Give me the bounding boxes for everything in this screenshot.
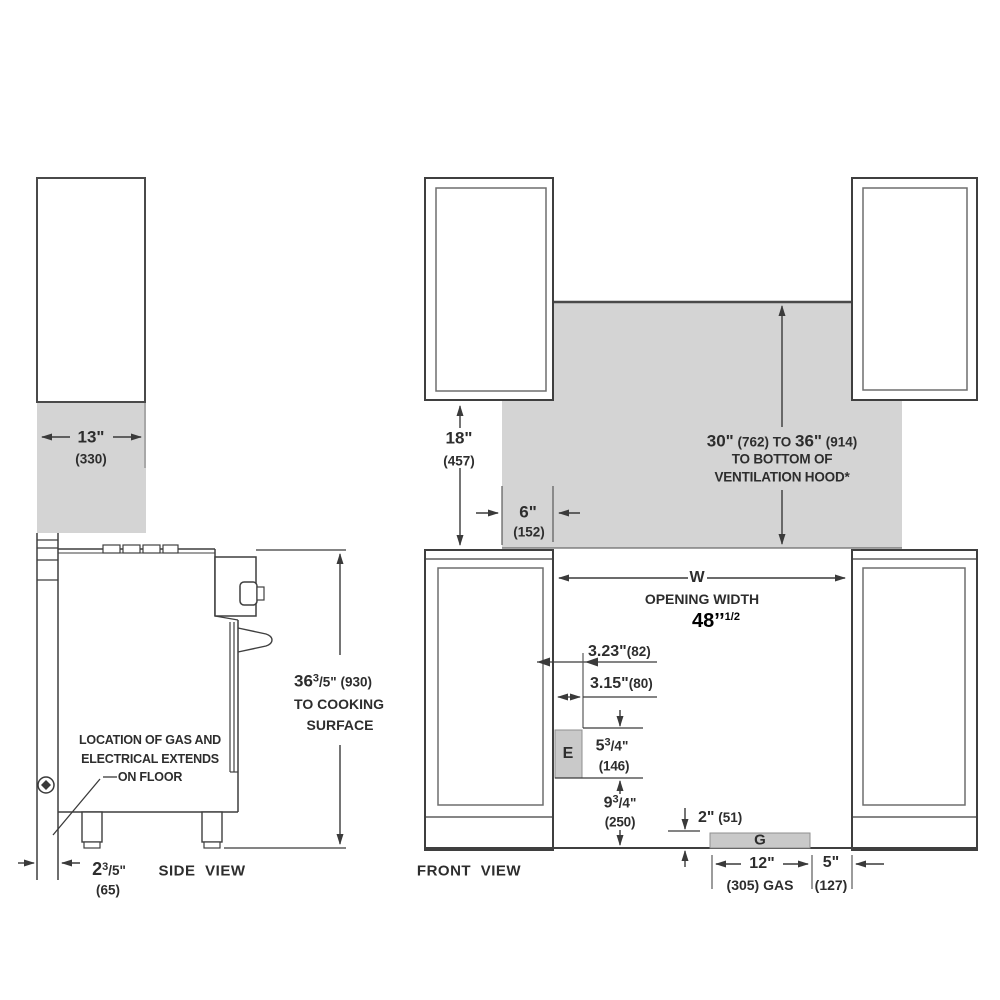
front-backsplash-area	[502, 302, 902, 548]
backsplash-side-in: 6"	[519, 504, 537, 521]
electrical-height-in: 53/4"	[596, 738, 629, 755]
diagram-linework	[0, 0, 1000, 1000]
installation-diagram: 13" (330) 363/5" (930) TO COOKING SURFAC…	[0, 0, 1000, 1000]
gas-box-label: G	[754, 833, 766, 848]
range-door-handle	[238, 628, 272, 652]
floor-clearance-in: 23/5"	[92, 860, 126, 878]
range-knob	[240, 582, 257, 605]
side-upper-cabinet	[37, 178, 145, 402]
hood-clearance-line1: 30" (762) TO 36" (914)	[707, 433, 858, 450]
side-backsplash-area	[37, 402, 146, 533]
electrical-box-label: E	[563, 746, 574, 762]
backsplash-side-mm: (152)	[513, 525, 545, 539]
floor-clearance-mm: (65)	[96, 883, 120, 897]
gas-width-mm: (305) GAS	[727, 878, 794, 892]
counter-to-cabinet-mm: (457)	[443, 454, 475, 468]
counter-to-cabinet-in: 18"	[446, 430, 473, 447]
hood-clearance-line3: VENTILATION HOOD*	[714, 470, 849, 484]
gas-note-line2: ELECTRICAL EXTENDS	[81, 753, 219, 766]
side-view-label: SIDE VIEW	[158, 864, 245, 879]
gas-note-line1: LOCATION OF GAS AND	[79, 734, 221, 747]
gas-offset-in: 5"	[823, 855, 839, 871]
gas-height-dim: 2" (51)	[698, 810, 742, 826]
front-view-label: FRONT VIEW	[417, 864, 521, 879]
side-cabinet-width-in: 13"	[78, 429, 105, 446]
electrical-offset-a: 3.23"(82)	[588, 644, 651, 660]
side-cabinet-width-mm: (330)	[75, 452, 107, 466]
opening-width-value: 48’’1/2	[692, 611, 740, 631]
range-side-profile	[58, 545, 272, 848]
electrical-floor-mm: (250)	[605, 815, 636, 829]
electrical-floor-in: 93/4"	[604, 795, 637, 812]
opening-width-letter: W	[689, 570, 704, 586]
upper-right-cabinet	[852, 178, 977, 400]
opening-width-label: OPENING WIDTH	[645, 592, 759, 606]
gas-connection-icon	[38, 777, 54, 793]
cooking-surface-height: 363/5" (930)	[294, 673, 372, 690]
cooking-surface-height-line2: TO COOKING	[294, 697, 384, 711]
hood-clearance-line2: TO BOTTOM OF	[732, 452, 833, 466]
upper-left-cabinet	[425, 178, 553, 400]
electrical-offset-b: 3.15"(80)	[590, 676, 653, 692]
cooking-surface-height-line3: SURFACE	[307, 718, 374, 732]
electrical-height-mm: (146)	[599, 759, 630, 773]
gas-width-in: 12"	[749, 856, 774, 872]
gas-note-line3: ON FLOOR	[118, 771, 182, 784]
gas-offset-mm: (127)	[815, 878, 848, 892]
